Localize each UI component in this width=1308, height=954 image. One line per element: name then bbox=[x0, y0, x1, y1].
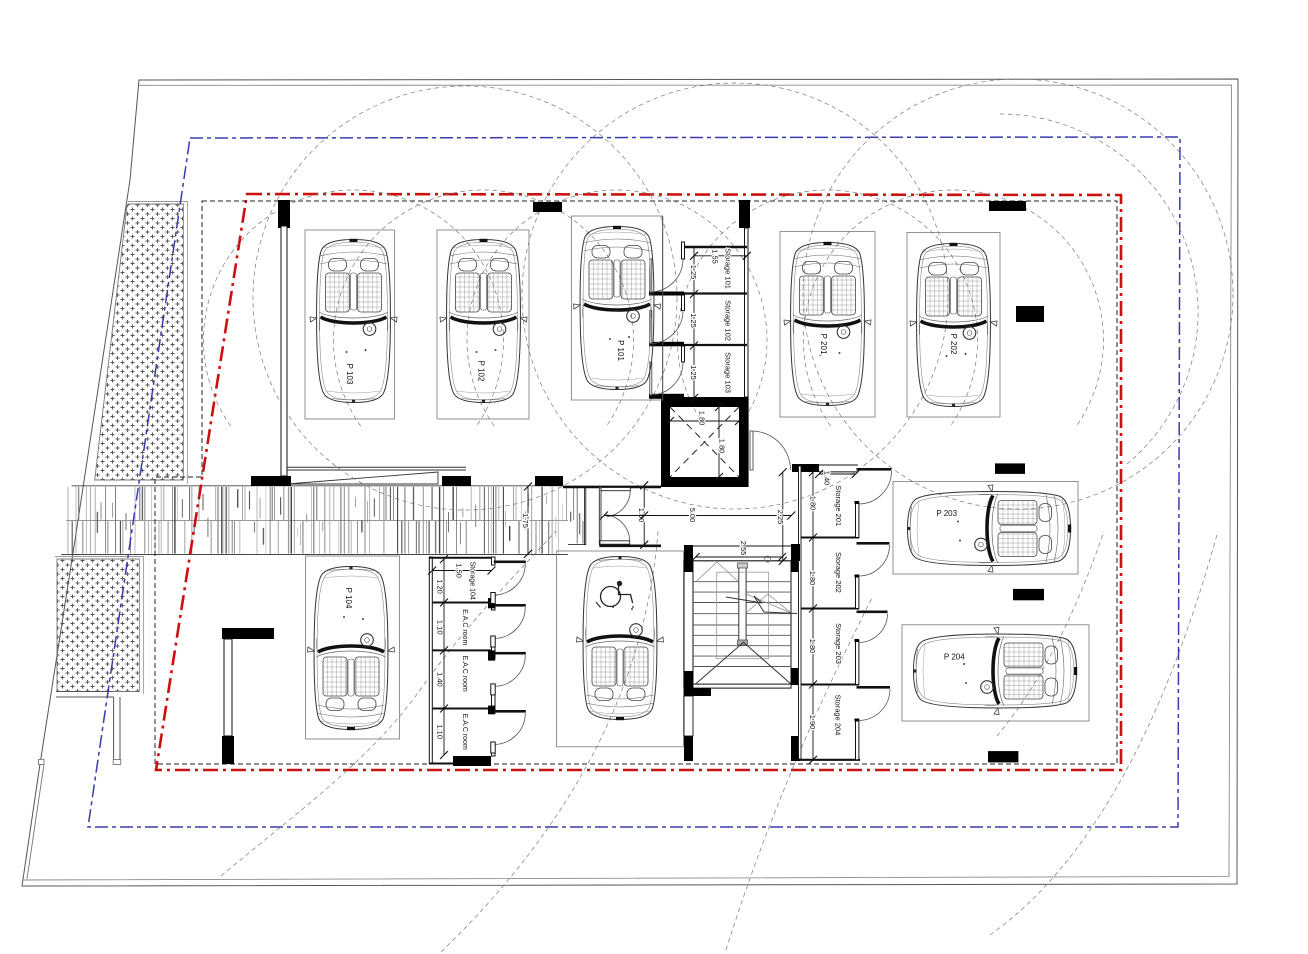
svg-text:1.40: 1.40 bbox=[436, 672, 445, 687]
svg-text:2.25: 2.25 bbox=[776, 510, 785, 525]
svg-text:P 204: P 204 bbox=[944, 652, 965, 661]
svg-text:P 201: P 201 bbox=[819, 334, 828, 355]
svg-text:1.80: 1.80 bbox=[698, 411, 707, 426]
svg-text:1.25: 1.25 bbox=[689, 313, 698, 328]
svg-text:P 102: P 102 bbox=[477, 361, 486, 382]
svg-text:1.10: 1.10 bbox=[436, 724, 445, 739]
svg-text:P 103: P 103 bbox=[345, 364, 354, 385]
svg-text:P 202: P 202 bbox=[949, 334, 958, 355]
svg-text:1.55: 1.55 bbox=[711, 249, 720, 264]
svg-text:1.90: 1.90 bbox=[808, 715, 817, 730]
svg-text:Storage 101: Storage 101 bbox=[723, 248, 732, 289]
svg-text:Storage 104: Storage 104 bbox=[469, 562, 476, 600]
svg-text:Storage 202: Storage 202 bbox=[834, 552, 843, 593]
svg-text:Storage 102: Storage 102 bbox=[723, 300, 732, 341]
svg-text:1.20: 1.20 bbox=[436, 579, 445, 594]
svg-text:P 104: P 104 bbox=[344, 588, 353, 609]
svg-text:P 101: P 101 bbox=[616, 340, 625, 361]
svg-text:Storage 103: Storage 103 bbox=[723, 352, 732, 393]
svg-text:E.A.C room: E.A.C room bbox=[461, 609, 468, 645]
svg-text:1.80: 1.80 bbox=[809, 496, 818, 511]
svg-text:E.A.C room: E.A.C room bbox=[461, 714, 468, 750]
svg-text:5.00: 5.00 bbox=[688, 508, 697, 523]
svg-text:1.75: 1.75 bbox=[521, 513, 530, 528]
svg-text:Storage 204: Storage 204 bbox=[834, 694, 843, 735]
svg-text:1.40: 1.40 bbox=[822, 471, 831, 486]
svg-text:1.10: 1.10 bbox=[436, 620, 445, 635]
svg-text:1.25: 1.25 bbox=[689, 265, 698, 280]
svg-text:1.50: 1.50 bbox=[454, 563, 463, 578]
svg-text:1.80: 1.80 bbox=[808, 639, 817, 654]
svg-text:1.80: 1.80 bbox=[808, 571, 817, 586]
svg-text:Storage 203: Storage 203 bbox=[834, 623, 843, 664]
svg-text:1.80: 1.80 bbox=[718, 439, 727, 454]
svg-text:1.25: 1.25 bbox=[689, 365, 698, 380]
svg-text:2.55: 2.55 bbox=[739, 541, 748, 556]
svg-text:E.A.C room: E.A.C room bbox=[461, 656, 468, 692]
svg-text:P 203: P 203 bbox=[936, 509, 957, 518]
svg-text:Storage 201: Storage 201 bbox=[834, 485, 843, 526]
